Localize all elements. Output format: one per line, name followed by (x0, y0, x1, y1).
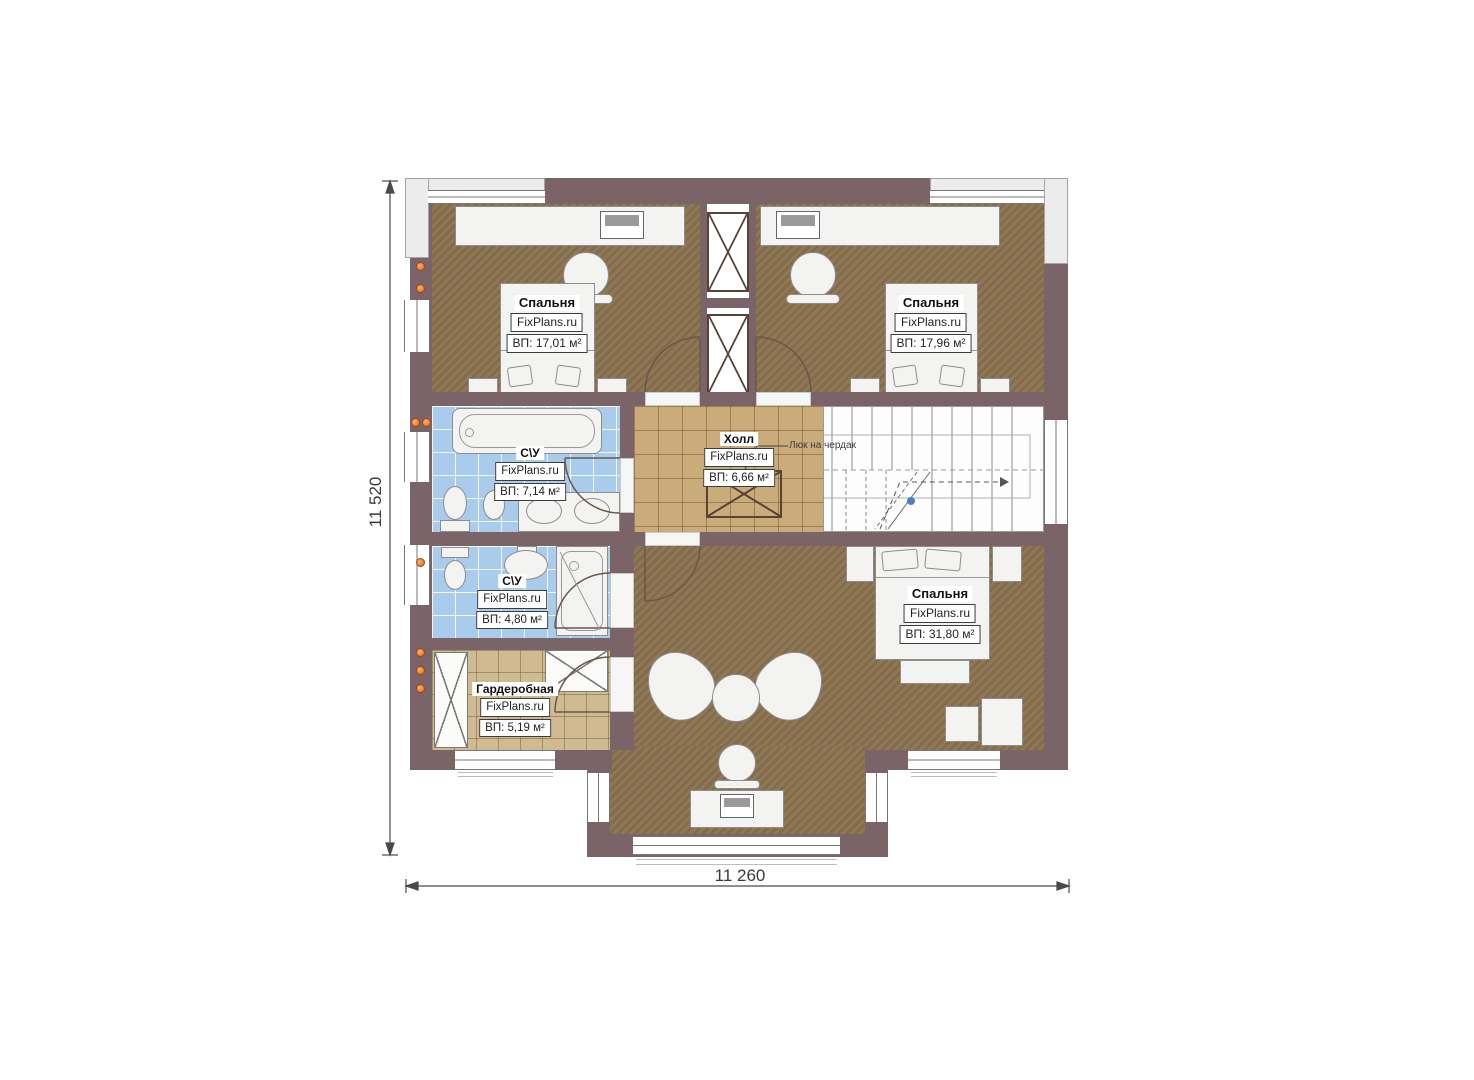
room-name: Спальня (515, 295, 579, 311)
vent-dot (416, 666, 425, 675)
window (428, 190, 545, 204)
floor-plan-canvas: Спальня FixPlans.ru ВП: 17,01 м² Спальня… (0, 0, 1474, 1080)
vent-dot (416, 558, 425, 567)
room-area: ВП: 5,19 м² (479, 719, 551, 737)
wall (700, 532, 1044, 546)
wall-top (545, 178, 930, 204)
window (1044, 420, 1068, 524)
window (404, 300, 430, 352)
wall (700, 298, 756, 308)
wall (620, 406, 634, 458)
wall (610, 628, 634, 657)
door-opening (610, 657, 634, 712)
room-area: ВП: 4,80 м² (476, 611, 548, 629)
fixplans-watermark: FixPlans.ru (511, 313, 583, 332)
door-opening (645, 532, 700, 546)
room-label-bedroom-2: Спальня FixPlans.ru ВП: 17,96 м² (891, 295, 972, 353)
window (404, 432, 430, 482)
door-opening (756, 392, 811, 406)
fixplans-watermark: FixPlans.ru (704, 448, 774, 466)
room-label-bedroom-1: Спальня FixPlans.ru ВП: 17,01 м² (507, 295, 588, 353)
dimension-width-label: 11 260 (700, 866, 780, 886)
closet-unit (434, 652, 468, 748)
pillow (939, 364, 966, 387)
window (908, 750, 1000, 770)
door-opening (610, 573, 634, 628)
window-sill (458, 772, 553, 777)
laptop-icon (600, 211, 644, 239)
room-label-bedroom-master: Спальня FixPlans.ru ВП: 31,80 м² (900, 586, 981, 644)
laptop-icon (776, 211, 820, 239)
fixplans-watermark: FixPlans.ru (477, 590, 547, 608)
wall-left (410, 196, 432, 768)
room-label-wardrobe: Гардеробная FixPlans.ru ВП: 5,19 м² (472, 682, 558, 737)
vent-dot (416, 684, 425, 693)
roof-eave (1044, 178, 1068, 264)
pillow (924, 548, 962, 571)
nightstand (846, 546, 874, 582)
round-table (712, 674, 760, 722)
vent-dot (416, 262, 425, 271)
vent-dot (416, 648, 425, 657)
pillow (555, 364, 582, 387)
side-table (945, 706, 979, 742)
window (930, 190, 1044, 204)
vent-shaft (707, 314, 749, 394)
sink (574, 498, 610, 524)
vent-shaft (707, 212, 749, 292)
bed-ottoman (900, 660, 970, 684)
toilet (441, 547, 469, 558)
wall (700, 392, 756, 406)
attic-hatch-label: Люк на чердак (789, 440, 856, 451)
dimension-height-label: 11 520 (366, 472, 386, 532)
vent-dot (411, 418, 420, 427)
room-area: ВП: 6,66 м² (703, 469, 775, 487)
window-sill (636, 859, 837, 865)
desk-chair-back (714, 780, 760, 789)
door-opening (645, 392, 700, 406)
laptop-icon (720, 794, 754, 818)
room-name: С\У (516, 446, 543, 460)
room-name: Гардеробная (472, 682, 558, 696)
fixplans-watermark: FixPlans.ru (895, 313, 967, 332)
cabinet (981, 698, 1023, 746)
vent-dot (416, 284, 425, 293)
nightstand (992, 546, 1022, 582)
sink (526, 498, 562, 524)
vent-dot (422, 418, 431, 427)
room-label-hall: Холл FixPlans.ru ВП: 6,66 м² (703, 432, 775, 487)
fixplans-watermark: FixPlans.ru (480, 698, 550, 716)
toilet-bowl (444, 560, 466, 590)
window (455, 750, 555, 770)
office-chair-back (786, 294, 840, 304)
window (587, 773, 610, 822)
room-name: Спальня (908, 586, 972, 602)
stairwell-floor (823, 406, 1044, 532)
pillow (892, 364, 919, 387)
window (404, 545, 430, 605)
wall (610, 712, 634, 750)
window (633, 836, 840, 855)
fixplans-watermark: FixPlans.ru (904, 604, 976, 623)
toilet-bowl (443, 486, 467, 520)
window (865, 773, 888, 822)
room-label-bathroom-1: С\У FixPlans.ru ВП: 7,14 м² (494, 446, 566, 501)
desk-chair (718, 744, 756, 782)
room-area: ВП: 31,80 м² (900, 625, 981, 644)
toilet (440, 520, 470, 532)
room-name: Спальня (899, 295, 963, 311)
office-chair (790, 252, 836, 298)
wall (620, 513, 634, 532)
room-area: ВП: 7,14 м² (494, 483, 566, 501)
roof-eave (405, 178, 429, 258)
window-sill (911, 772, 997, 777)
pillow (881, 548, 919, 571)
room-area: ВП: 17,01 м² (507, 334, 588, 353)
wall (811, 392, 1044, 406)
wall (610, 546, 634, 573)
wall (432, 638, 610, 650)
room-name: С\У (498, 574, 525, 588)
fixplans-watermark: FixPlans.ru (495, 462, 565, 480)
door-opening (620, 458, 634, 513)
room-label-bathroom-2: С\У FixPlans.ru ВП: 4,80 м² (476, 574, 548, 629)
room-area: ВП: 17,96 м² (891, 334, 972, 353)
pillow (507, 364, 534, 387)
wall (432, 392, 645, 406)
wall (410, 532, 645, 546)
desk (455, 206, 685, 246)
shower (556, 546, 608, 636)
room-name: Холл (720, 432, 758, 446)
